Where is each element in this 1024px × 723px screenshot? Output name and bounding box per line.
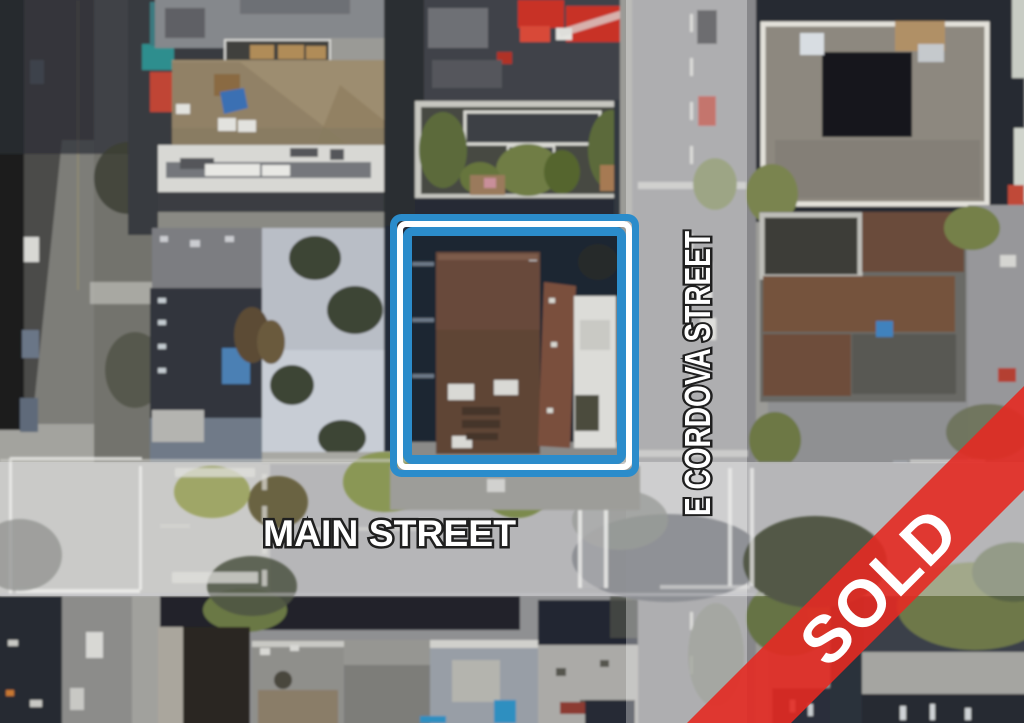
svg-text:MAIN STREET: MAIN STREET xyxy=(263,513,516,554)
svg-text:E CORDOVA STREET: E CORDOVA STREET xyxy=(677,231,718,516)
